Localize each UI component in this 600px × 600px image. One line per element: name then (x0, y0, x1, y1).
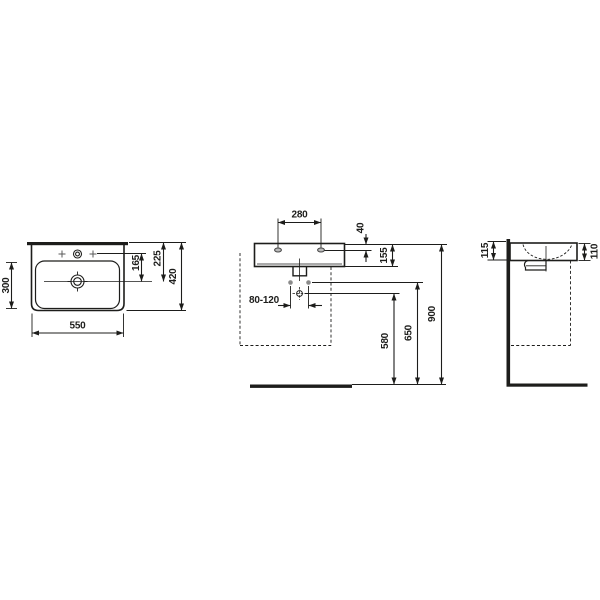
dim-total-depth: 420 (168, 243, 182, 311)
front-view: 280 40 155 80-120 580 650 (240, 210, 447, 388)
tap-hole-right-icon (318, 248, 325, 252)
dim-label-165: 165 (131, 254, 142, 271)
side-clearance-dashed (511, 261, 571, 346)
wall-edge-bar (27, 242, 128, 245)
dim-label-115: 115 (480, 242, 491, 258)
dim-trap-outlet-height: 580 (380, 294, 394, 385)
tap-hole-alt-right-icon (90, 251, 97, 258)
side-view-extension-lines (488, 242, 591, 261)
dim-label-650: 650 (404, 324, 415, 341)
side-view: 115 110 (480, 239, 600, 387)
dim-back-to-drain: 225 (153, 243, 164, 282)
basin-side-outline (510, 243, 577, 261)
dim-label-80-120: 80-120 (249, 295, 280, 306)
dim-label-300: 300 (1, 277, 12, 294)
mounting-bolt-left-icon (288, 280, 293, 285)
floor-bar (250, 385, 352, 388)
dim-label-40: 40 (356, 222, 367, 233)
dim-label-420: 420 (168, 268, 179, 285)
tap-hole-alt-left-icon (59, 251, 66, 258)
dim-label-580: 580 (380, 332, 391, 349)
dim-label-900: 900 (427, 305, 438, 322)
dim-label-280: 280 (291, 210, 308, 221)
floor-bar-side (507, 384, 588, 387)
dim-width: 550 (32, 321, 124, 334)
trap-outlet-icon (293, 287, 307, 300)
technical-drawing-canvas: 165 225 420 300 550 (0, 0, 600, 600)
dim-label-155: 155 (379, 247, 390, 264)
dim-tap-hole-offset: 40 (356, 222, 367, 262)
trap-protrusion (524, 246, 546, 272)
dim-back-height: 115 (480, 242, 494, 261)
dim-basin-depth: 300 (1, 263, 12, 309)
dim-tap-hole-spacing: 280 (278, 210, 321, 223)
mounting-bolt-right-icon (306, 280, 311, 285)
dim-label-550: 550 (69, 321, 86, 332)
drawing-sheet: 165 225 420 300 550 (0, 0, 600, 600)
dim-tap-to-drain: 165 (131, 254, 142, 282)
tap-hole-left-icon (275, 248, 282, 252)
dim-basin-height: 155 (379, 245, 393, 267)
dim-front-height: 110 (585, 243, 600, 260)
dim-rim-height: 900 (427, 245, 442, 385)
dim-bolt-height: 650 (404, 283, 418, 385)
tap-hole-icon (74, 250, 82, 258)
top-view: 165 225 420 300 550 (1, 242, 186, 337)
dim-drain-offset-range: 80-120 (249, 295, 322, 306)
dim-label-110: 110 (590, 243, 600, 259)
dim-label-225: 225 (153, 250, 164, 267)
bowl-profile-dashed (523, 245, 572, 260)
